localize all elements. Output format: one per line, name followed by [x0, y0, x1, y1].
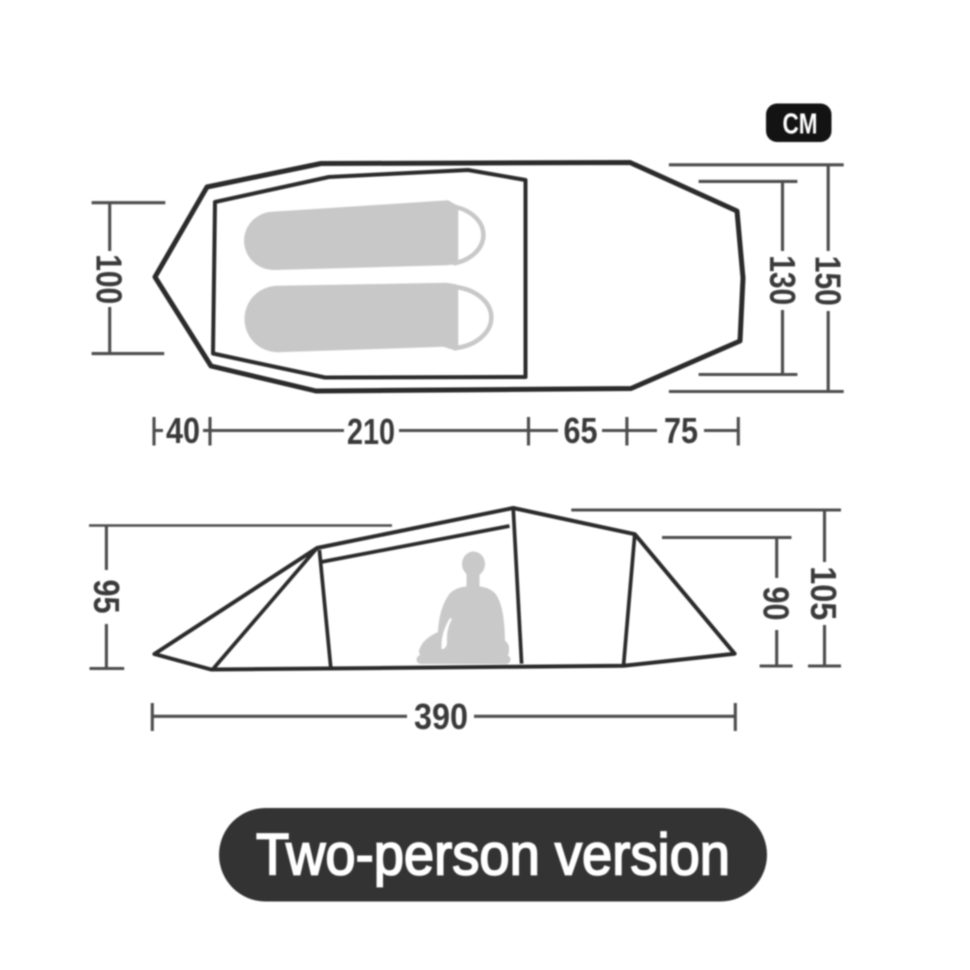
svg-text:CM: CM [783, 109, 818, 141]
svg-text:90: 90 [756, 587, 797, 621]
svg-text:150: 150 [808, 256, 849, 306]
svg-text:130: 130 [762, 255, 803, 305]
svg-text:65: 65 [564, 410, 598, 451]
svg-text:105: 105 [803, 566, 844, 620]
svg-text:40: 40 [166, 410, 200, 451]
svg-text:100: 100 [89, 254, 130, 304]
svg-text:75: 75 [664, 410, 698, 451]
svg-text:Two-person version: Two-person version [256, 822, 730, 887]
svg-text:390: 390 [414, 696, 468, 737]
svg-text:210: 210 [347, 411, 395, 452]
svg-text:95: 95 [86, 580, 127, 614]
